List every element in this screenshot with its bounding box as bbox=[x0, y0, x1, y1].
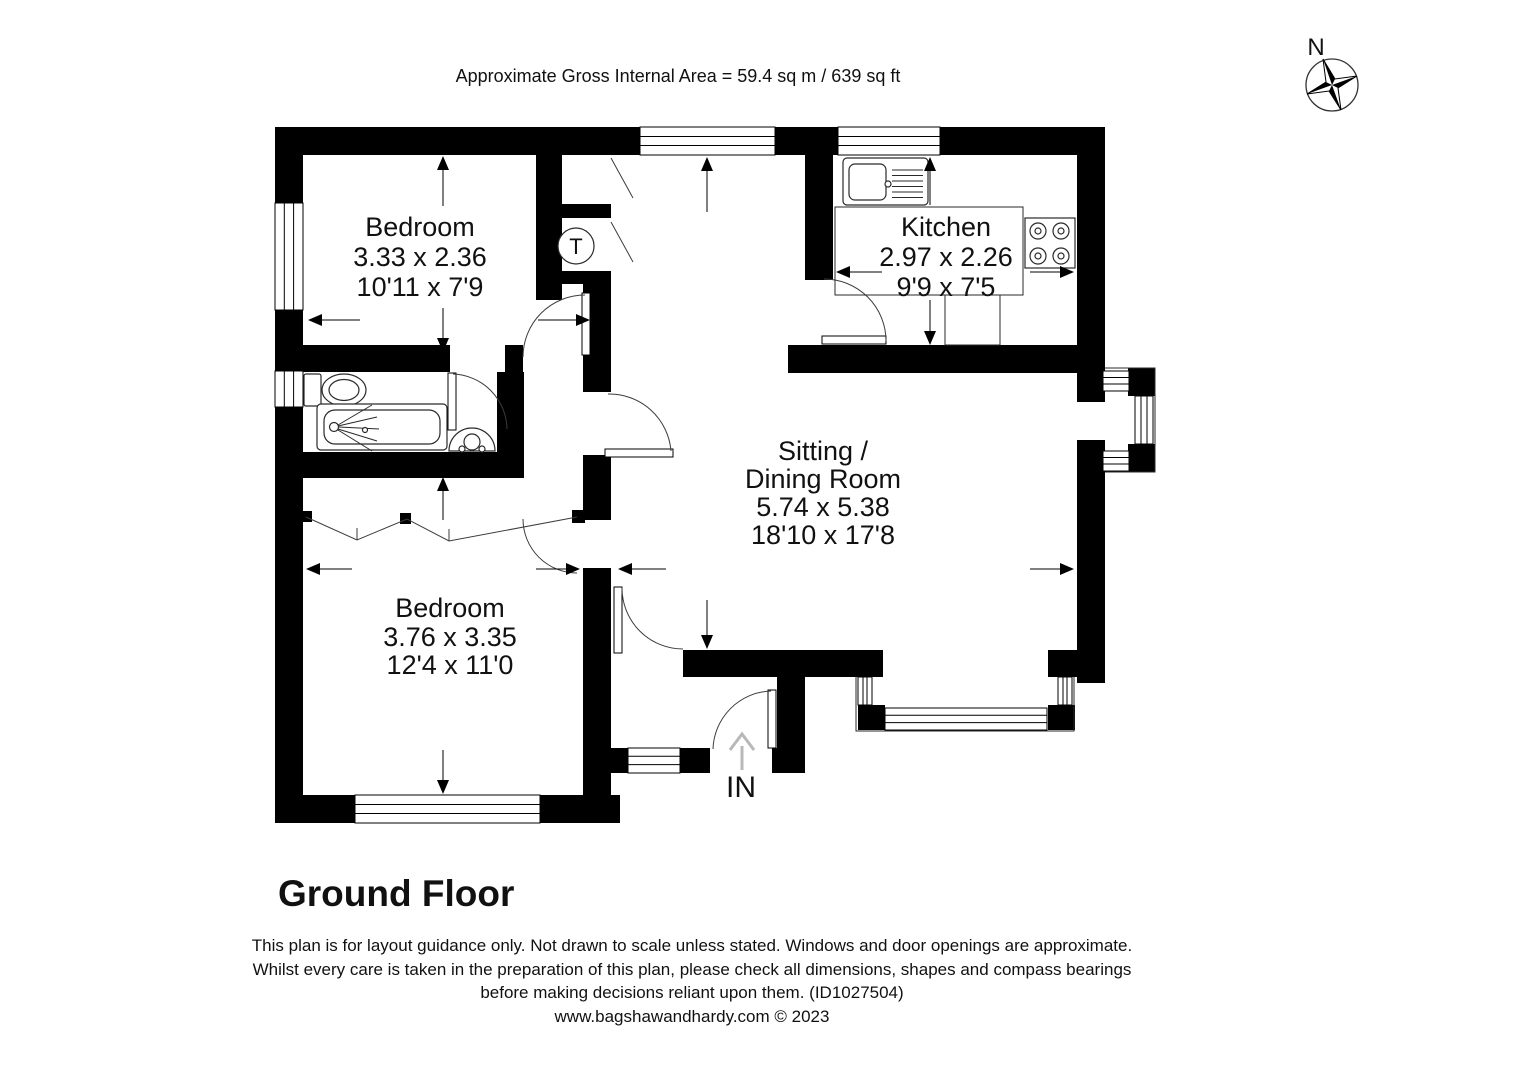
gross-internal-area-label: Approximate Gross Internal Area = 59.4 s… bbox=[456, 66, 901, 86]
bathroom-sink-icon bbox=[449, 428, 495, 452]
sitting-imperial: 18'10 x 17'8 bbox=[751, 520, 895, 550]
kitchen-label: Kitchen 2.97 x 2.26 9'9 x 7'5 bbox=[879, 212, 1013, 302]
kitchen-counter-return bbox=[945, 295, 1000, 345]
wardrobe-bifold-doors bbox=[306, 517, 577, 541]
kitchen-metric: 2.97 x 2.26 bbox=[879, 242, 1013, 272]
bath-icon bbox=[317, 404, 447, 451]
disclaimer: This plan is for layout guidance only. N… bbox=[252, 936, 1132, 1026]
bedroom2-imperial: 12'4 x 11'0 bbox=[387, 650, 514, 680]
floorplan-canvas: Approximate Gross Internal Area = 59.4 s… bbox=[0, 0, 1528, 1080]
bathroom-fixtures bbox=[304, 374, 495, 452]
disclaimer-line1: This plan is for layout guidance only. N… bbox=[252, 936, 1132, 955]
entrance-in-label: IN bbox=[726, 771, 756, 804]
bay-window-front bbox=[885, 708, 1047, 730]
hob-icon bbox=[1025, 218, 1075, 268]
floor-title: Ground Floor bbox=[278, 873, 514, 914]
sitting-dining-label: Sitting / Dining Room 5.74 x 5.38 18'10 … bbox=[745, 436, 901, 550]
kitchen-name: Kitchen bbox=[901, 212, 991, 242]
bedroom2-name: Bedroom bbox=[395, 593, 505, 623]
compass-north-label: N bbox=[1307, 34, 1324, 61]
kitchen-top-window bbox=[838, 127, 940, 155]
floorplan-page: Approximate Gross Internal Area = 59.4 s… bbox=[0, 0, 1528, 1080]
bathroom-left-window bbox=[275, 371, 303, 407]
bedroom1-imperial: 10'11 x 7'9 bbox=[357, 272, 484, 302]
bedroom2-metric: 3.76 x 3.35 bbox=[383, 622, 517, 652]
sitting-room-top-window bbox=[640, 127, 775, 155]
kitchen-sink-icon bbox=[843, 158, 928, 205]
bedroom1-name: Bedroom bbox=[365, 212, 475, 242]
bay-window-right-side bbox=[1058, 677, 1072, 705]
tank-cupboard: T bbox=[558, 228, 594, 264]
kitchen-imperial: 9'9 x 7'5 bbox=[897, 272, 996, 302]
bedroom2-bottom-window bbox=[355, 795, 540, 823]
bedroom2-label: Bedroom 3.76 x 3.35 12'4 x 11'0 bbox=[383, 593, 517, 680]
cupboard-doors bbox=[611, 158, 633, 262]
bedroom1-door bbox=[523, 293, 590, 357]
front-entrance-door bbox=[713, 690, 776, 749]
bay-window-left-side bbox=[858, 677, 872, 705]
sitting-name-line2: Dining Room bbox=[745, 464, 901, 494]
disclaimer-line2: Whilst every care is taken in the prepar… bbox=[253, 960, 1132, 979]
sitting-room-dimension-arrows bbox=[618, 157, 1074, 649]
sitting-name-line1: Sitting / bbox=[778, 436, 869, 466]
toilet-icon bbox=[304, 374, 366, 406]
side-porch-door bbox=[1135, 396, 1153, 444]
bedroom1-left-window bbox=[275, 203, 303, 310]
bedroom1-label: Bedroom 3.33 x 2.36 10'11 x 7'9 bbox=[353, 212, 487, 302]
website-line: www.bagshawandhardy.com © 2023 bbox=[554, 1007, 830, 1026]
entrance-arrow-icon bbox=[730, 734, 754, 770]
side-porch-bottom-window bbox=[1103, 451, 1129, 471]
entrance-lobby-window bbox=[628, 748, 680, 773]
tank-label: T bbox=[569, 234, 582, 259]
kitchen-door bbox=[822, 279, 886, 344]
disclaimer-line3: before making decisions reliant upon the… bbox=[480, 983, 903, 1002]
compass-rose: N bbox=[1306, 34, 1358, 111]
sitting-room-door bbox=[605, 394, 673, 457]
sitting-metric: 5.74 x 5.38 bbox=[756, 492, 890, 522]
vestibule-door bbox=[614, 587, 683, 653]
side-porch-top-window bbox=[1103, 371, 1129, 391]
bedroom1-metric: 3.33 x 2.36 bbox=[353, 242, 487, 272]
